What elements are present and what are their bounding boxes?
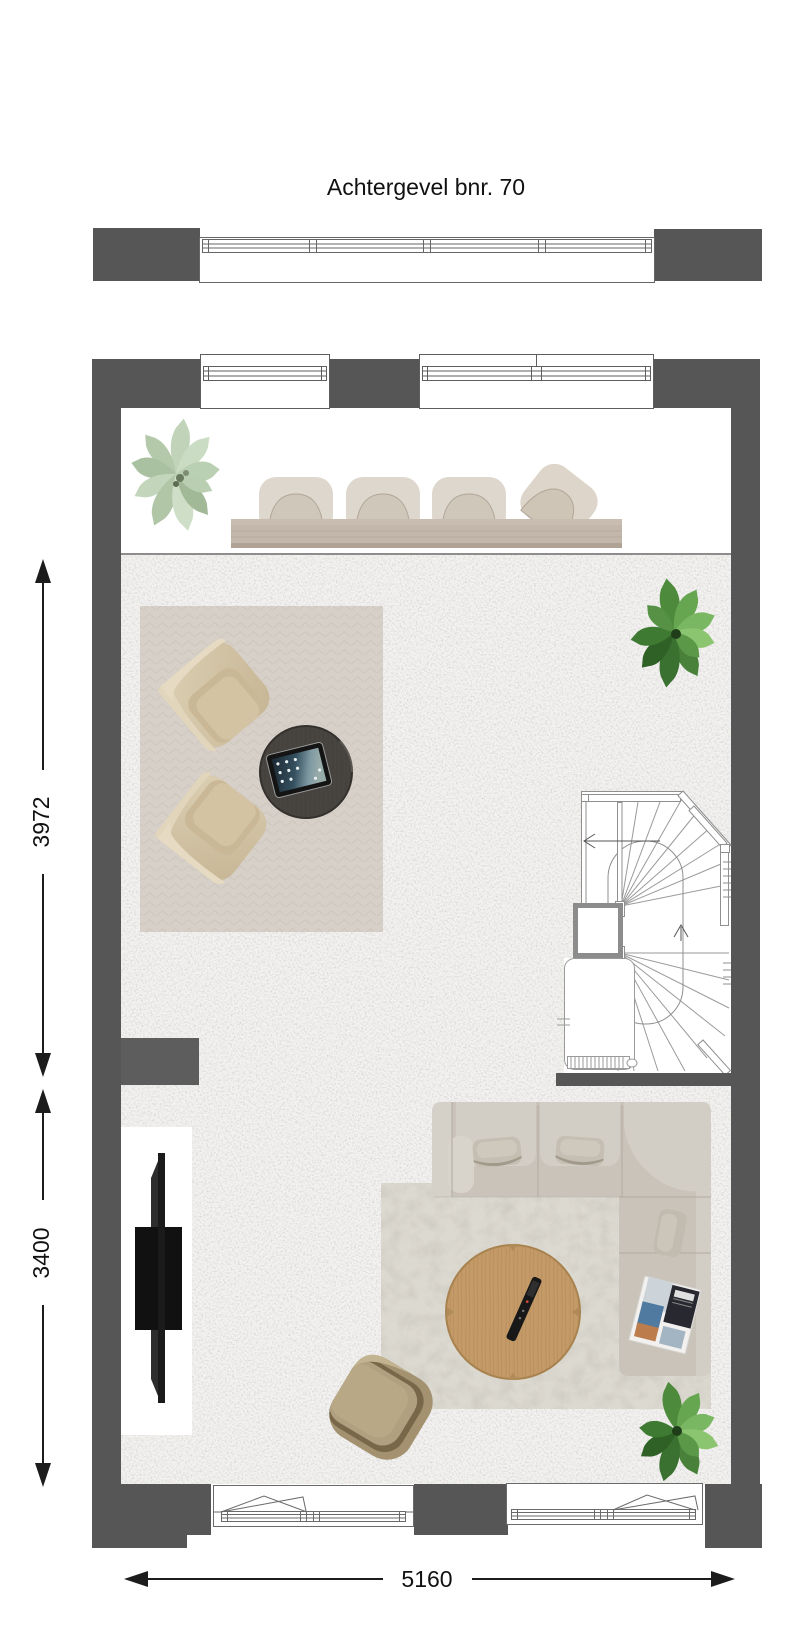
svg-text:3400: 3400 [28, 1227, 54, 1278]
svg-text:5160: 5160 [401, 1566, 452, 1592]
svg-text:Achtergevel bnr. 70: Achtergevel bnr. 70 [327, 174, 525, 200]
svg-text:3972: 3972 [28, 796, 54, 847]
